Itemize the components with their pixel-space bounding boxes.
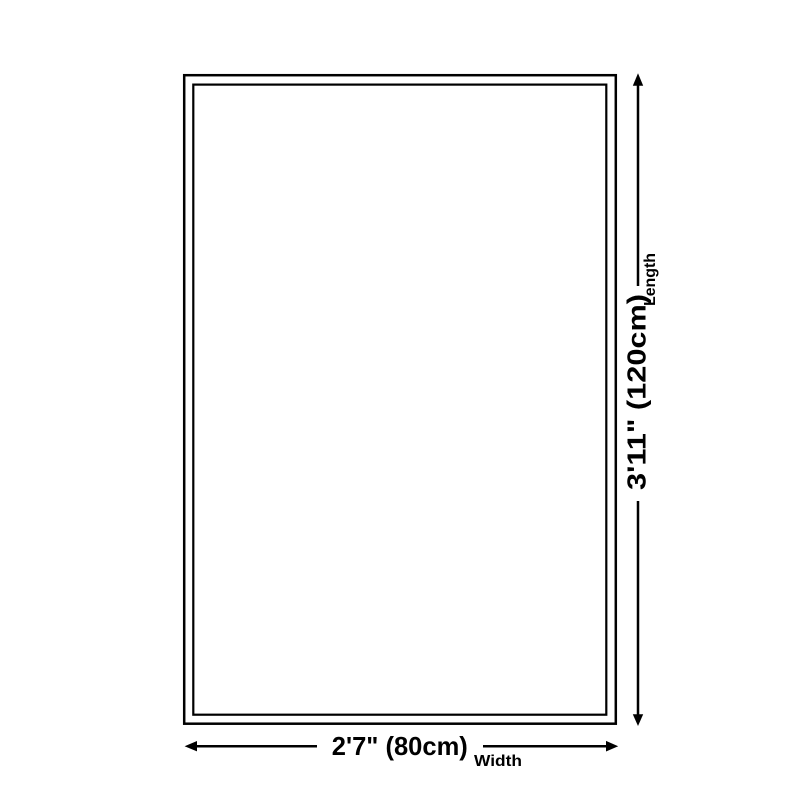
svg-text:Length: Length (642, 253, 659, 306)
svg-text:2'7" (80cm): 2'7" (80cm) (332, 731, 468, 761)
svg-text:3'11" (120cm): 3'11" (120cm) (622, 294, 652, 490)
svg-text:Width: Width (474, 753, 522, 770)
